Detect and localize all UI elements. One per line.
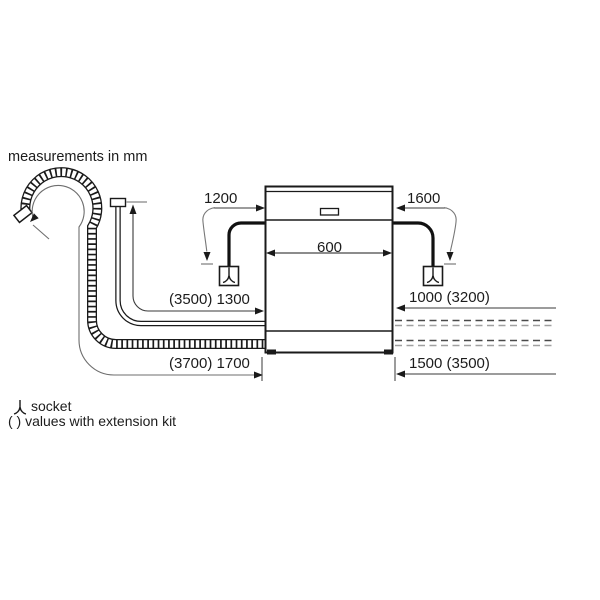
drain-hose-end-cap (14, 206, 32, 223)
dim-1600-label: 1600 (407, 191, 440, 208)
dishwasher-outline (266, 187, 394, 355)
dim-supply-hose-label: (3500) 1300 (169, 292, 250, 309)
door-handle (321, 209, 339, 216)
arrowhead-left (396, 205, 405, 212)
dim-1000-label: 1000 (3200) (409, 290, 490, 307)
arrowhead-up (130, 205, 137, 215)
socket-icon (220, 267, 239, 286)
dim-drain-hose-label: (3700) 1700 (169, 356, 250, 373)
hose-extension-dashed-lower (395, 341, 556, 346)
supply-hose-end-cap (111, 199, 126, 207)
arrowhead-down (447, 252, 454, 261)
socket-icon (424, 267, 443, 286)
installation-diagram: measurements in mm 1200 1600 600 (3500) … (0, 0, 600, 600)
dim-1200-leader-arc (203, 208, 215, 252)
socket-icon (14, 400, 26, 414)
arrowhead-left (396, 371, 405, 378)
dim-600-label: 600 (314, 240, 345, 257)
page-title: measurements in mm (8, 150, 147, 166)
diagram-linework (0, 0, 600, 600)
power-cord-left (229, 223, 266, 266)
dim-1500-label: 1500 (3500) (409, 356, 490, 373)
power-cord-right (392, 223, 433, 266)
dim-1600-leader-arc (444, 208, 456, 252)
hose-extension-dashed-upper (395, 321, 556, 326)
foot-left (267, 350, 276, 355)
arrowhead-right (256, 205, 265, 212)
arrowhead-right (255, 308, 264, 315)
arrowhead-left (396, 305, 405, 312)
arrowhead-down (204, 252, 211, 261)
foot-right (384, 350, 393, 355)
legend-extension-note: ( ) values with extension kit (8, 414, 176, 429)
dim-1200-label: 1200 (204, 191, 237, 208)
arrowhead-down-left (30, 213, 39, 222)
